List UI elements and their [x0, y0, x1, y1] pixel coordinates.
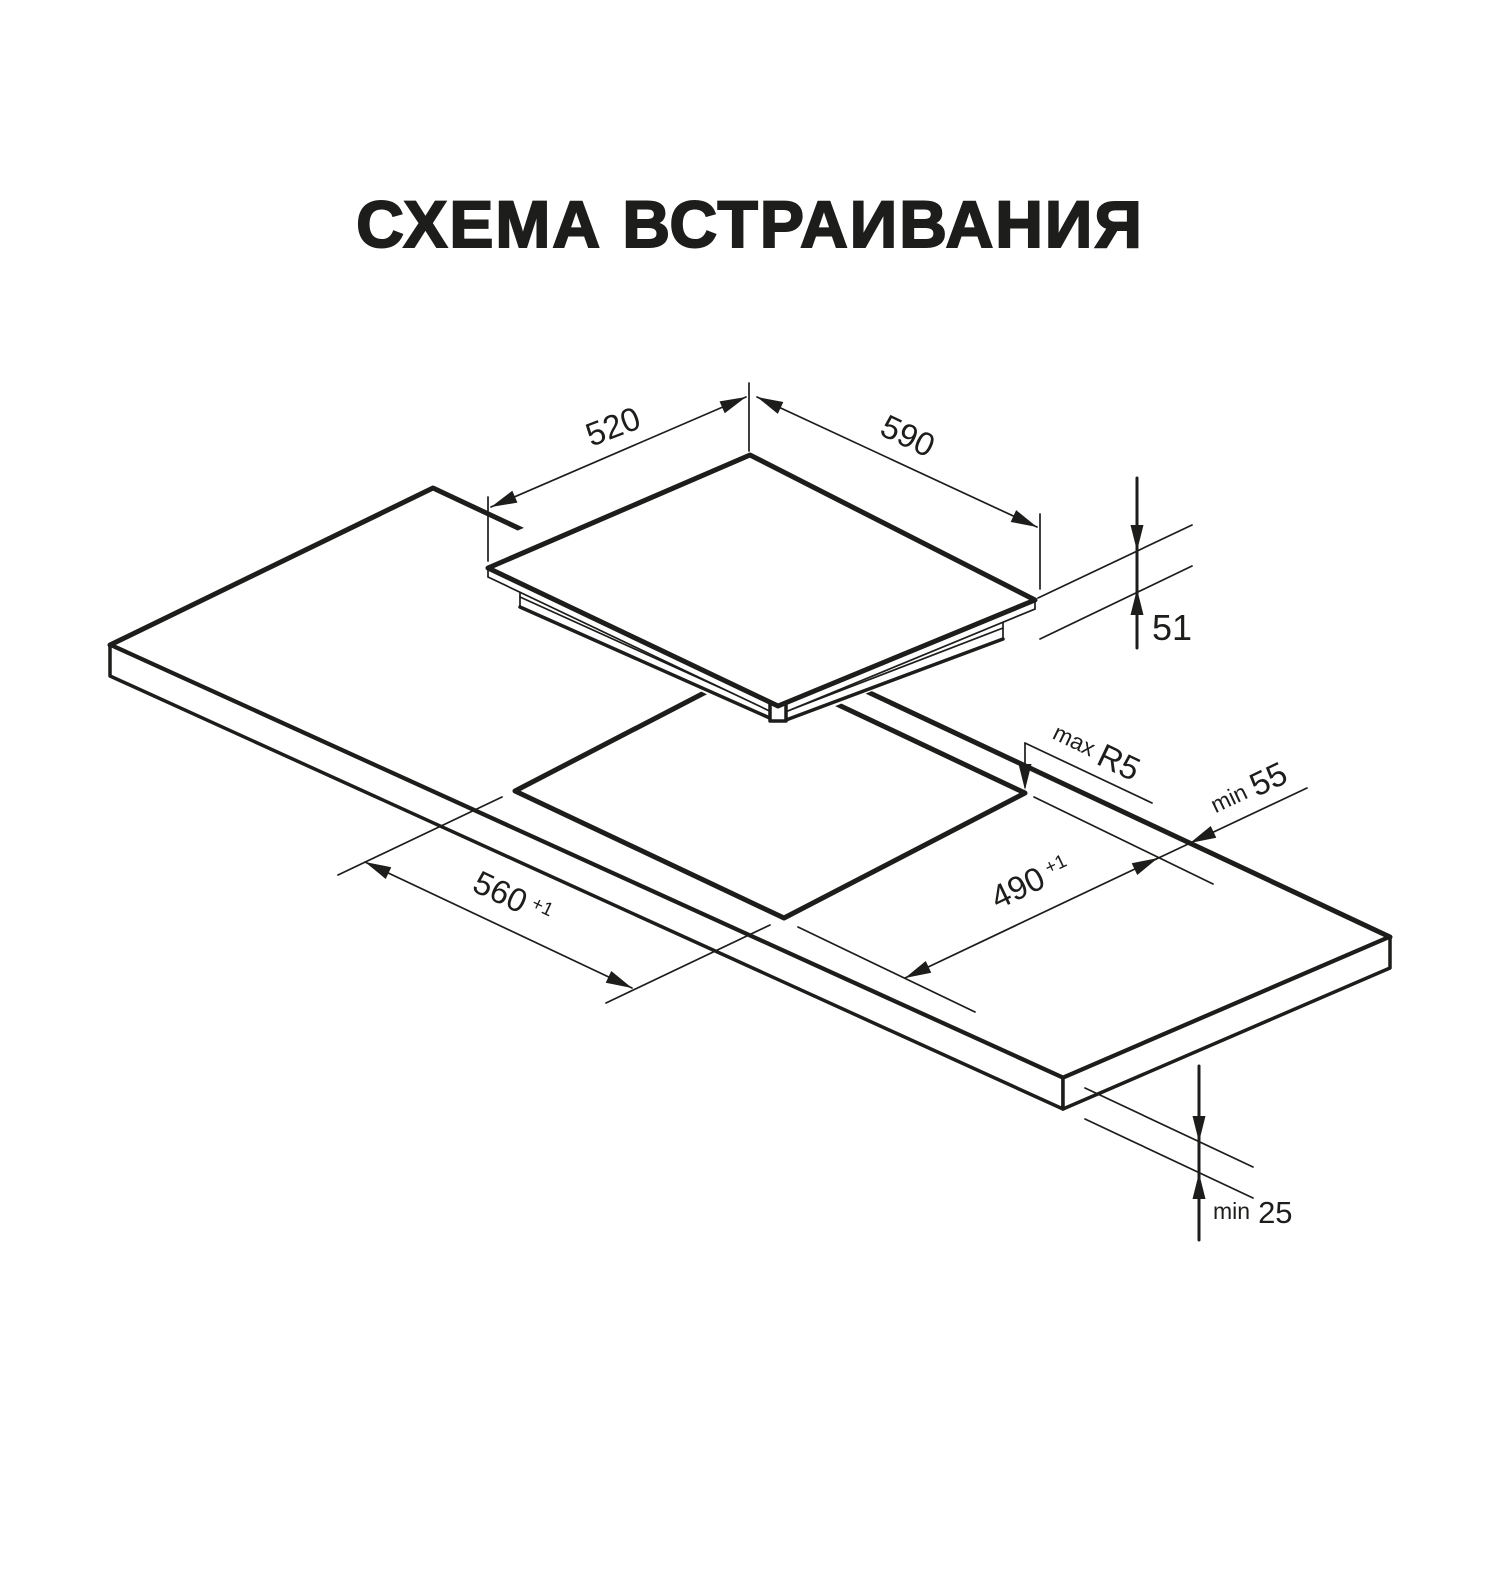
arrowhead [1193, 1116, 1206, 1142]
dim-51-label: 51 [1152, 607, 1192, 648]
extension-line [1085, 1119, 1253, 1198]
arrowhead [606, 971, 632, 988]
arrowhead [1190, 826, 1216, 843]
arrowhead [365, 862, 391, 879]
dim-min-25-label: min25 [1213, 1195, 1293, 1230]
arrowhead [757, 397, 783, 414]
dimension-cooktop-height: 51 [1038, 478, 1192, 648]
arrowhead [1011, 510, 1037, 527]
page-title: СХЕМА ВСТРАИВАНИЯ [356, 187, 1144, 261]
extension-line [1085, 1088, 1253, 1167]
dim-min-55-label: min55 [1204, 754, 1293, 822]
dimension-worktop-thickness: min25 [1085, 1066, 1293, 1240]
installation-diagram: СХЕМА ВСТРАИВАНИЯ [0, 0, 1500, 1586]
arrowhead [1131, 589, 1144, 615]
extension-line [1038, 525, 1192, 598]
arrowhead [720, 397, 746, 413]
installation-diagram-page: СХЕМА ВСТРАИВАНИЯ [0, 0, 1500, 1586]
arrowhead [1193, 1173, 1206, 1199]
arrowhead [491, 491, 517, 507]
arrowhead [1131, 525, 1144, 551]
